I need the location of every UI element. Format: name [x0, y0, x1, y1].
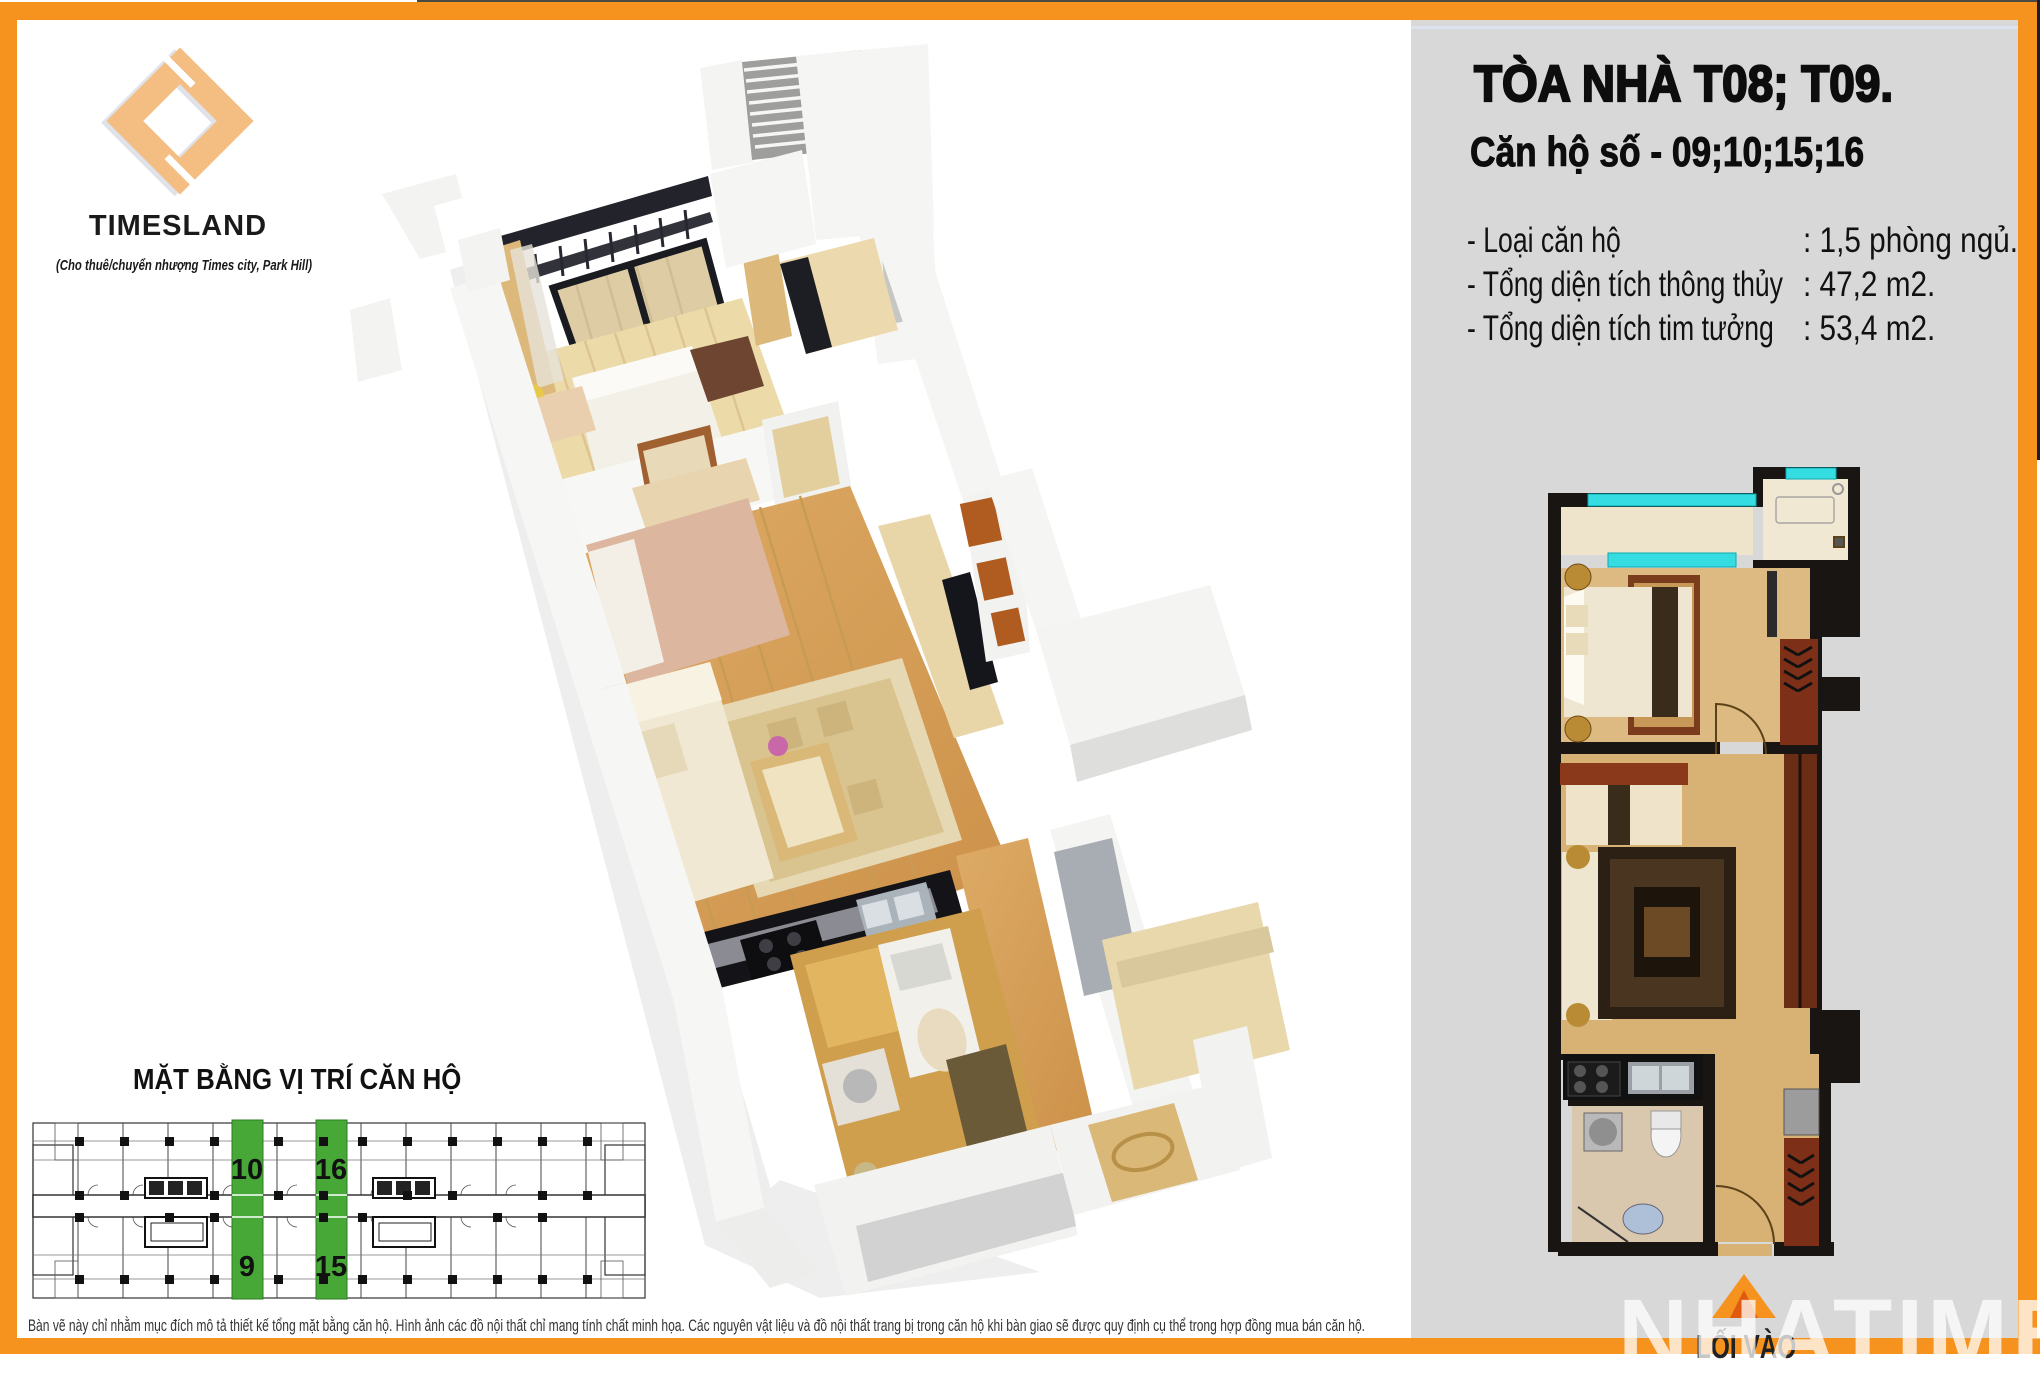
svg-text:(Cho thuê/chuyển nhượng Times: (Cho thuê/chuyển nhượng Times city, Park… — [56, 257, 312, 274]
svg-text:9: 9 — [239, 1251, 255, 1283]
svg-text:10: 10 — [231, 1154, 263, 1186]
svg-text:TIMESLAND: TIMESLAND — [89, 210, 267, 242]
svg-text:16: 16 — [315, 1154, 347, 1186]
